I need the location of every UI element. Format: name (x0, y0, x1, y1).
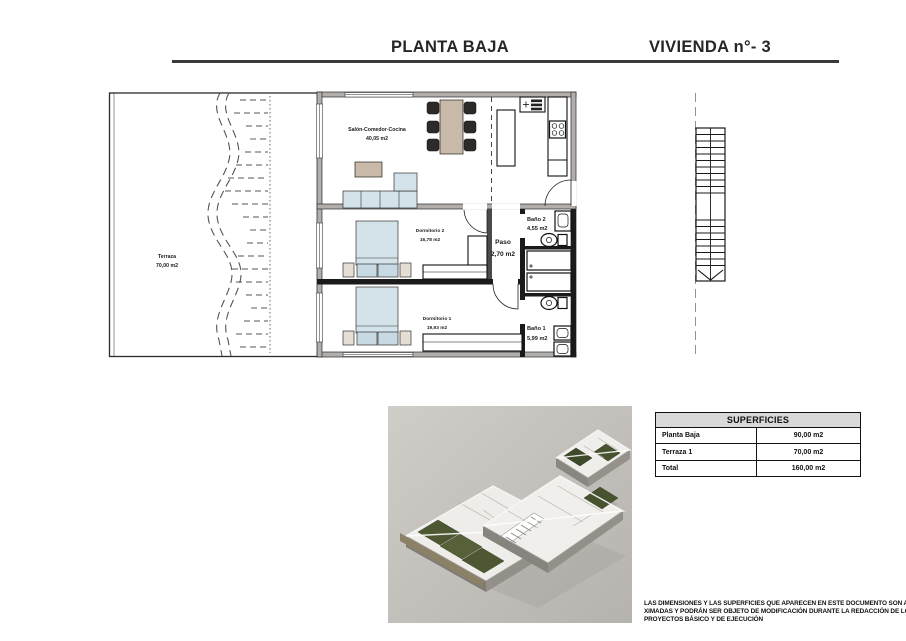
hallway: Paso 2,70 m2 (491, 239, 516, 258)
bed-icon (343, 221, 411, 277)
room-area-paso: 2,70 m2 (491, 251, 516, 258)
document-page: PLANTA BAJA VIVIENDA n°- 3 (0, 0, 906, 641)
header-rule (172, 60, 839, 63)
room-label-salon: Salón-Comedor-Cocina (348, 127, 406, 133)
terrace: Terraza 70,00 m2 (110, 93, 318, 357)
room-label-bano2: Baño 2 (527, 217, 546, 223)
room-label-terraza: Terraza (158, 254, 176, 260)
room-label-paso: Paso (495, 239, 511, 246)
kitchen-counter (497, 110, 515, 166)
hob-icon (550, 121, 566, 138)
dining-table (440, 100, 463, 154)
table-row: Total 160,00 m2 (656, 460, 860, 476)
surface-value: 160,00 m2 (757, 461, 860, 476)
bathroom-2: Baño 2 4,55 m2 (527, 211, 571, 291)
kitchen (497, 97, 567, 176)
staircase-plan-icon (696, 93, 726, 357)
room-label-dorm2: Dormitorio 2 (416, 228, 445, 234)
room-area-terraza: 70,00 m2 (156, 263, 178, 269)
washbasin-icon (555, 211, 571, 231)
room-label-bano1: Baño 1 (527, 326, 546, 332)
building-3d-render (388, 406, 632, 623)
washbasin-icon (554, 326, 571, 356)
toilet-icon (541, 297, 567, 310)
surface-label: Total (656, 461, 757, 476)
surfaces-table-title: SUPERFICIES (656, 413, 860, 428)
bathroom-1: Baño 1 5,99 m2 (527, 297, 571, 357)
floor-plan: Terraza 70,00 m2 (105, 85, 735, 365)
table-row: Terraza 1 70,00 m2 (656, 443, 860, 459)
table-row: Planta Baja 90,00 m2 (656, 428, 860, 443)
disclaimer-line: PROYECTOS BÁSICO Y DE EJECUCIÓN (644, 616, 890, 624)
bedroom-1: Dormitorio 1 19,93 m2 (343, 287, 522, 351)
disclaimer-line: LAS DIMENSIONES Y LAS SUPERFICIES QUE AP… (644, 600, 890, 608)
surface-value: 90,00 m2 (757, 428, 860, 443)
toilet-icon (541, 234, 567, 247)
surface-label: Terraza 1 (656, 444, 757, 459)
room-area-bano2: 4,55 m2 (527, 226, 548, 232)
bed-icon (343, 287, 411, 345)
page-title-left: PLANTA BAJA (391, 36, 509, 58)
room-area-salon: 40,05 m2 (366, 136, 388, 142)
surfaces-table: SUPERFICIES Planta Baja 90,00 m2 Terraza… (655, 412, 861, 477)
disclaimer-line: XIMADAS Y PODRÁN SER OBJETO DE MODIFICAC… (644, 608, 890, 616)
room-area-bano1: 5,99 m2 (527, 336, 548, 342)
disclaimer-text: LAS DIMENSIONES Y LAS SUPERFICIES QUE AP… (644, 600, 890, 623)
room-label-dorm1: Dormitorio 1 (423, 316, 452, 322)
page-title-right: VIVIENDA n°- 3 (649, 36, 771, 58)
sofa (343, 173, 417, 208)
wardrobe (423, 334, 522, 351)
shower-tray (527, 251, 571, 291)
surface-value: 70,00 m2 (757, 444, 860, 459)
sink-icon (520, 97, 545, 112)
room-area-dorm2: 16,78 m2 (420, 237, 441, 243)
room-area-dorm1: 19,93 m2 (427, 325, 448, 331)
surface-label: Planta Baja (656, 428, 757, 443)
bedroom-2: Dormitorio 2 16,78 m2 (343, 221, 487, 279)
living-room: Salón-Comedor-Cocina 40,05 m2 (343, 97, 567, 208)
coffee-table (355, 162, 382, 177)
